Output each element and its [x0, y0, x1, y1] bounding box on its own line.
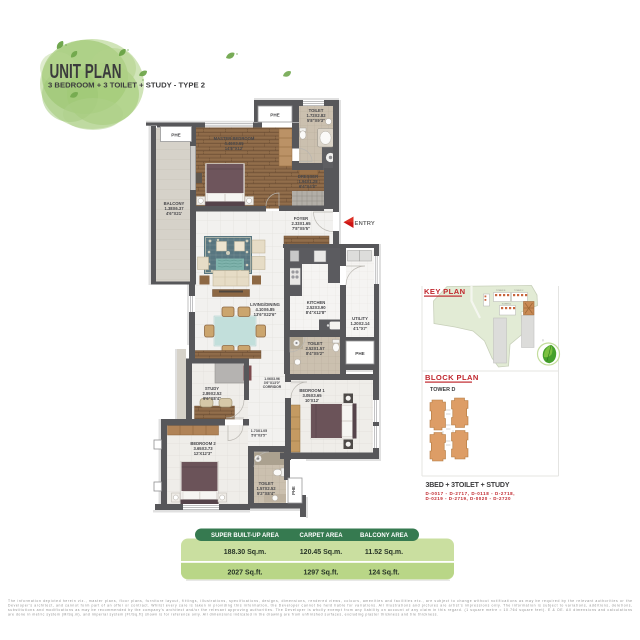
svg-text:®: ® — [542, 339, 544, 343]
svg-text:10'X12': 10'X12' — [305, 398, 319, 403]
svg-text:120.45 Sq.m.: 120.45 Sq.m. — [300, 549, 342, 556]
svg-text:BLOCK PLAN: BLOCK PLAN — [425, 373, 479, 382]
svg-text:TOWER A: TOWER A — [502, 303, 512, 306]
svg-text:8'4"X5'2": 8'4"X5'2" — [306, 351, 324, 356]
svg-text:124 Sq.ft.: 124 Sq.ft. — [368, 570, 399, 577]
svg-text:PHE: PHE — [270, 113, 279, 118]
svg-text:11.52 Sq.m.: 11.52 Sq.m. — [365, 549, 403, 556]
svg-text:4'6"X21': 4'6"X21' — [166, 211, 182, 216]
svg-text:PHE: PHE — [355, 351, 364, 356]
svg-text:CARPET AREA: CARPET AREA — [299, 533, 343, 539]
svg-text:CORRIDOR: CORRIDOR — [263, 385, 282, 389]
svg-text:TOWER C: TOWER C — [514, 290, 524, 292]
svg-text:6'4"X4'2": 6'4"X4'2" — [299, 184, 317, 189]
svg-text:KEY PLAN: KEY PLAN — [424, 287, 465, 296]
svg-text:1.73X1.05: 1.73X1.05 — [251, 429, 267, 433]
svg-text:D-0219 - D-2719, D-0020 - D-27: D-0219 - D-2719, D-0020 - D-2720 — [426, 496, 511, 501]
svg-text:1297 Sq.ft.: 1297 Sq.ft. — [303, 570, 338, 577]
svg-text:7'8"X5'5": 7'8"X5'5" — [292, 226, 310, 231]
svg-text:5'8"X3'5": 5'8"X3'5" — [251, 434, 267, 438]
svg-text:PHE: PHE — [291, 486, 296, 495]
svg-text:The information depicted herei: The information depicted herein viz., ma… — [8, 599, 632, 603]
svg-text:3 BEDROOM + 3 TOILET + STUDY -: 3 BEDROOM + 3 TOILET + STUDY - TYPE 2 — [48, 81, 205, 90]
svg-text:4'1"X7': 4'1"X7' — [353, 326, 367, 331]
svg-text:14'8"X12': 14'8"X12' — [225, 146, 243, 151]
svg-text:5'8"X9'3": 5'8"X9'3" — [307, 118, 325, 123]
svg-text:substitutions and modification: substitutions and modifications as may b… — [8, 608, 632, 612]
svg-text:2027 Sq.ft.: 2027 Sq.ft. — [227, 570, 262, 577]
svg-text:TOWER B: TOWER B — [496, 290, 506, 292]
svg-text:SUPER BUILT-UP AREA: SUPER BUILT-UP AREA — [211, 533, 280, 539]
svg-text:are done in metric system (M/S: are done in metric system (M/Sq.m), and … — [8, 613, 438, 617]
svg-text:9'6"X8'4": 9'6"X8'4" — [203, 396, 221, 401]
svg-text:TOWER D: TOWER D — [430, 387, 455, 393]
svg-text:3BED + 3TOILET + STUDY: 3BED + 3TOILET + STUDY — [426, 482, 510, 489]
svg-text:BALCONY AREA: BALCONY AREA — [360, 533, 409, 539]
svg-text:PHE: PHE — [171, 133, 180, 138]
svg-text:ENTRY: ENTRY — [355, 221, 375, 227]
svg-text:Developer's architect, and can: Developer's architect, and cannot form p… — [8, 604, 632, 608]
svg-text:5'2"X8'4": 5'2"X8'4" — [257, 491, 275, 496]
svg-text:12'X12'3": 12'X12'3" — [194, 451, 212, 456]
svg-text:8'4"X12'8": 8'4"X12'8" — [306, 310, 326, 315]
svg-text:13'6"X22'6": 13'6"X22'6" — [254, 312, 277, 317]
svg-text:188.30 Sq.m.: 188.30 Sq.m. — [224, 549, 266, 556]
